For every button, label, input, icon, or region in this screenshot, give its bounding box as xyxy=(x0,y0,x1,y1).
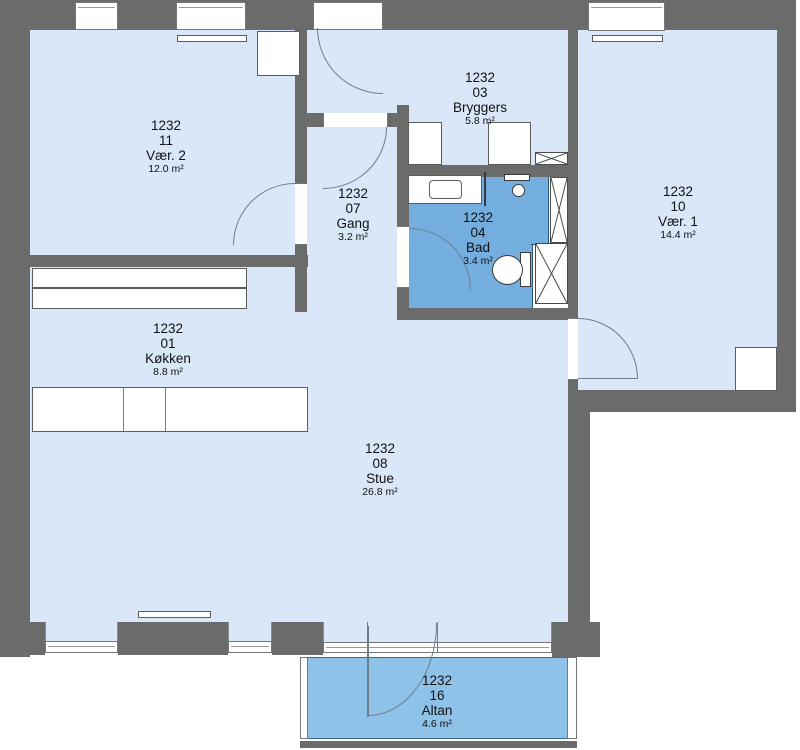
wall-stue-right xyxy=(568,390,590,622)
wall-bad-bottom xyxy=(397,308,578,320)
room-label-altan: 1232 16 Altan 4.6 m² xyxy=(422,673,453,731)
room-label-vaer1: 1232 10 Vær. 1 14.4 m² xyxy=(658,184,698,242)
room-label-bryggers: 1232 03 Bryggers 5.8 m² xyxy=(453,70,507,128)
balcony-door-leaf xyxy=(367,626,369,717)
wall-exterior-right xyxy=(777,25,796,390)
room-name: Køkken xyxy=(145,351,191,366)
room-code: 1232 xyxy=(146,118,186,133)
room-name: Bad xyxy=(463,240,493,255)
counter-divider-1 xyxy=(123,388,124,431)
room-code: 1232 xyxy=(145,321,191,336)
wall-exterior-top xyxy=(0,0,796,30)
room-code: 1232 xyxy=(422,673,453,688)
door-opening-gang xyxy=(323,113,388,127)
room-code: 1232 xyxy=(453,70,507,85)
room-number: 08 xyxy=(362,456,398,471)
door-opening-vaer2 xyxy=(295,183,307,245)
room-name: Bryggers xyxy=(453,100,507,115)
room-number: 04 xyxy=(463,225,493,240)
entry-door-opening xyxy=(313,2,383,30)
room-area: 14.4 m² xyxy=(658,229,698,242)
window-stue-right-frame xyxy=(228,641,272,653)
wardrobe-vaer1 xyxy=(735,347,777,391)
wall-exterior-bottom-1 xyxy=(0,622,45,655)
floor-plan: 1232 11 Vær. 2 12.0 m² 1232 03 Bryggers … xyxy=(0,0,800,750)
wall-exterior-left xyxy=(0,25,30,657)
room-code: 1232 xyxy=(463,210,493,225)
wall-gang-top-left xyxy=(295,113,323,127)
balcony-edge-bottom xyxy=(300,741,577,748)
door-opening-vaer1 xyxy=(568,318,578,380)
room-area: 26.8 m² xyxy=(362,486,398,499)
room-label-gang: 1232 07 Gang 3.2 m² xyxy=(336,186,369,244)
wall-vaer2-bottom xyxy=(30,255,308,267)
room-number: 07 xyxy=(336,201,369,216)
room-code: 1232 xyxy=(658,184,698,199)
room-label-stue: 1232 08 Stue 26.8 m² xyxy=(362,441,398,499)
room-bad-shower-nook xyxy=(531,170,549,245)
kitchen-counter-upper-row2 xyxy=(32,288,247,309)
window-vaer2-left xyxy=(75,2,118,30)
balcony-rail-right xyxy=(567,657,577,739)
window-stue-right-glass xyxy=(228,622,272,642)
bad-partition-line xyxy=(484,172,486,206)
toilet-bowl xyxy=(492,255,523,285)
room-area: 3.2 m² xyxy=(336,231,369,244)
room-number: 10 xyxy=(658,199,698,214)
duct-shaft-top xyxy=(535,152,568,165)
balcony-rail-left xyxy=(300,657,308,739)
room-number: 03 xyxy=(453,85,507,100)
counter-divider-2 xyxy=(165,388,166,431)
room-area: 8.8 m² xyxy=(145,366,191,379)
room-label-koekken: 1232 01 Køkken 8.8 m² xyxy=(145,321,191,379)
window-vaer2-right xyxy=(176,2,246,30)
shower-bar xyxy=(504,174,530,181)
dryer-bryggers xyxy=(488,122,531,165)
wall-exterior-bottom-4 xyxy=(552,622,600,657)
wardrobe-vaer2 xyxy=(257,31,300,76)
room-name: Stue xyxy=(362,471,398,486)
washer-bryggers xyxy=(408,122,442,165)
radiator-stue xyxy=(138,611,211,618)
room-name: Gang xyxy=(336,216,369,231)
wall-exterior-bottom-2 xyxy=(118,622,228,655)
window-stue-left-frame xyxy=(45,641,118,653)
room-area: 12.0 m² xyxy=(146,163,186,176)
room-area: 5.8 m² xyxy=(453,115,507,128)
room-area: 4.6 m² xyxy=(422,718,453,731)
wall-vaer1-bottom xyxy=(568,390,796,412)
sink-basin-bad xyxy=(429,180,462,199)
room-code: 1232 xyxy=(362,441,398,456)
room-name: Altan xyxy=(422,703,453,718)
balcony-mullion-right xyxy=(437,622,438,653)
window-vaer1 xyxy=(588,2,665,31)
room-number: 01 xyxy=(145,336,191,351)
window-stue-left-glass xyxy=(45,622,118,642)
wall-vaer1-left-lower xyxy=(568,380,578,392)
room-name: Vær. 2 xyxy=(146,148,186,163)
room-number: 16 xyxy=(422,688,453,703)
room-label-bad: 1232 04 Bad 3.4 m² xyxy=(463,210,493,268)
vaer1-door-leaf xyxy=(578,378,637,379)
kitchen-counter-lower xyxy=(32,387,308,432)
room-name: Vær. 1 xyxy=(658,214,698,229)
wall-vaer1-left-upper xyxy=(568,25,578,318)
room-area: 3.4 m² xyxy=(463,255,493,268)
duct-shaft-large xyxy=(535,243,568,304)
door-opening-bad xyxy=(397,226,409,288)
shower-head xyxy=(512,184,525,197)
room-number: 11 xyxy=(146,133,186,148)
radiator-vaer1 xyxy=(592,35,663,42)
room-code: 1232 xyxy=(336,186,369,201)
wall-exterior-bottom-3 xyxy=(272,622,323,655)
duct-shaft-narrow xyxy=(550,177,568,243)
radiator-vaer2 xyxy=(177,35,247,42)
room-label-vaer2: 1232 11 Vær. 2 12.0 m² xyxy=(146,118,186,176)
kitchen-counter-upper-row1 xyxy=(32,268,247,288)
